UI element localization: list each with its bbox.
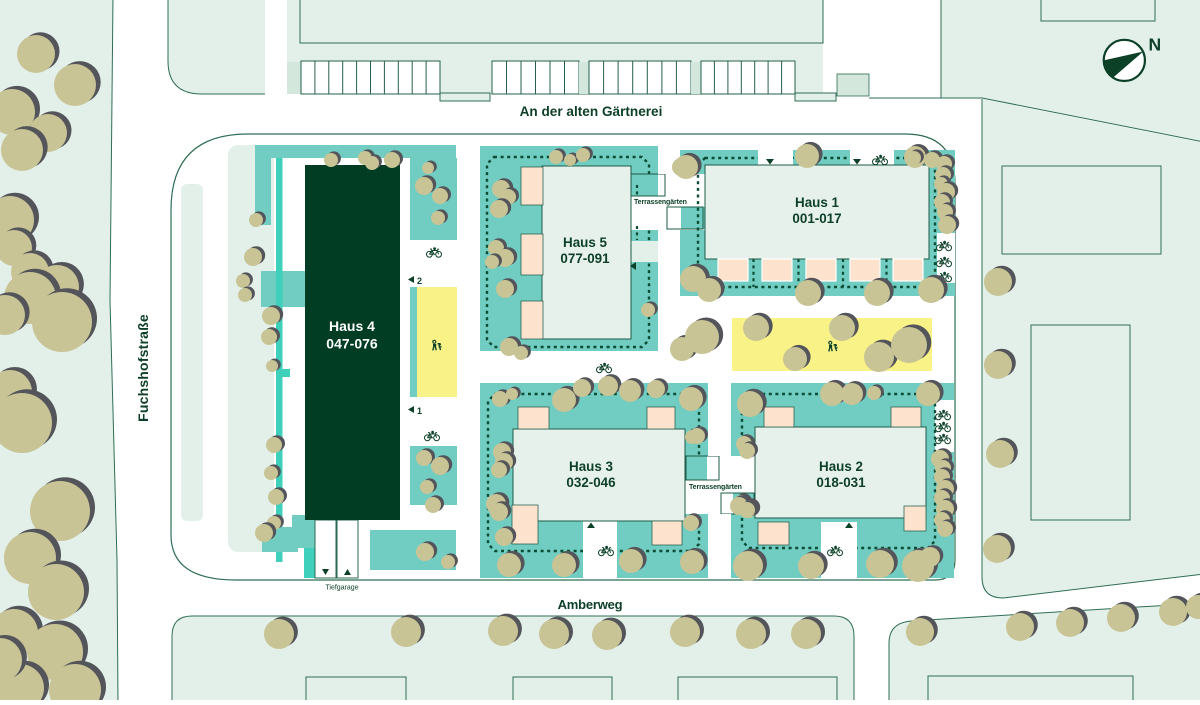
svg-text:Haus 5: Haus 5 (563, 235, 607, 250)
svg-text:Fuchshofstraße: Fuchshofstraße (135, 314, 151, 422)
svg-text:N: N (1149, 35, 1162, 55)
svg-text:Tiefgarage: Tiefgarage (325, 585, 358, 592)
svg-text:Terrassengärten: Terrassengärten (689, 484, 742, 491)
svg-text:Haus 1: Haus 1 (795, 195, 839, 210)
svg-text:1: 1 (417, 406, 422, 416)
svg-text:077-091: 077-091 (560, 251, 610, 266)
svg-text:047-076: 047-076 (326, 336, 378, 352)
svg-text:Haus 2: Haus 2 (819, 459, 863, 474)
svg-text:018-031: 018-031 (816, 475, 866, 490)
svg-text:001-017: 001-017 (792, 211, 841, 226)
svg-text:Haus 3: Haus 3 (569, 459, 613, 474)
svg-text:Haus 4: Haus 4 (329, 318, 375, 334)
svg-text:Amberweg: Amberweg (558, 597, 623, 612)
svg-text:An der alten Gärtnerei: An der alten Gärtnerei (520, 104, 663, 119)
svg-text:Terrassengärten: Terrassengärten (634, 199, 687, 206)
svg-text:2: 2 (417, 276, 422, 286)
svg-text:032-046: 032-046 (566, 475, 615, 490)
